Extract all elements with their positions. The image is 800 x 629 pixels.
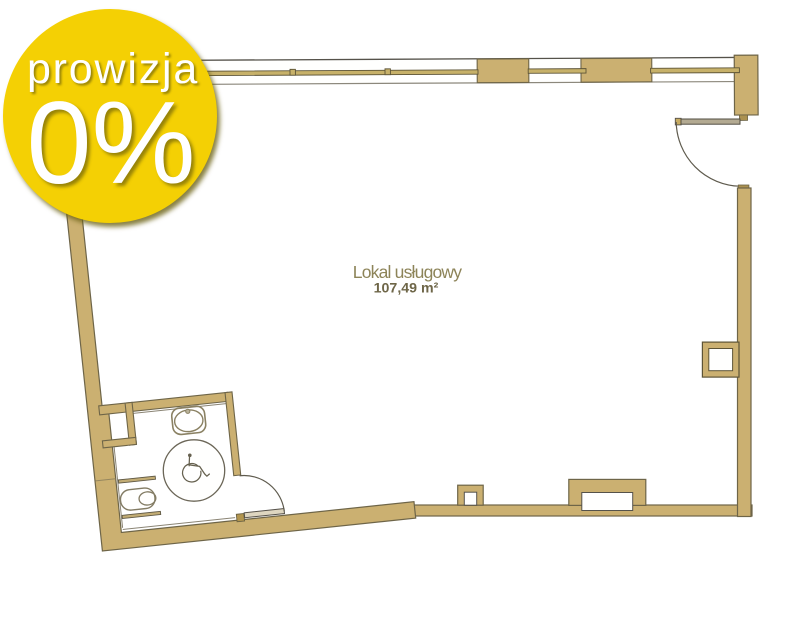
svg-text:107,49 m²: 107,49 m² (374, 280, 439, 296)
svg-text:Lokal usługowy: Lokal usługowy (353, 262, 463, 282)
